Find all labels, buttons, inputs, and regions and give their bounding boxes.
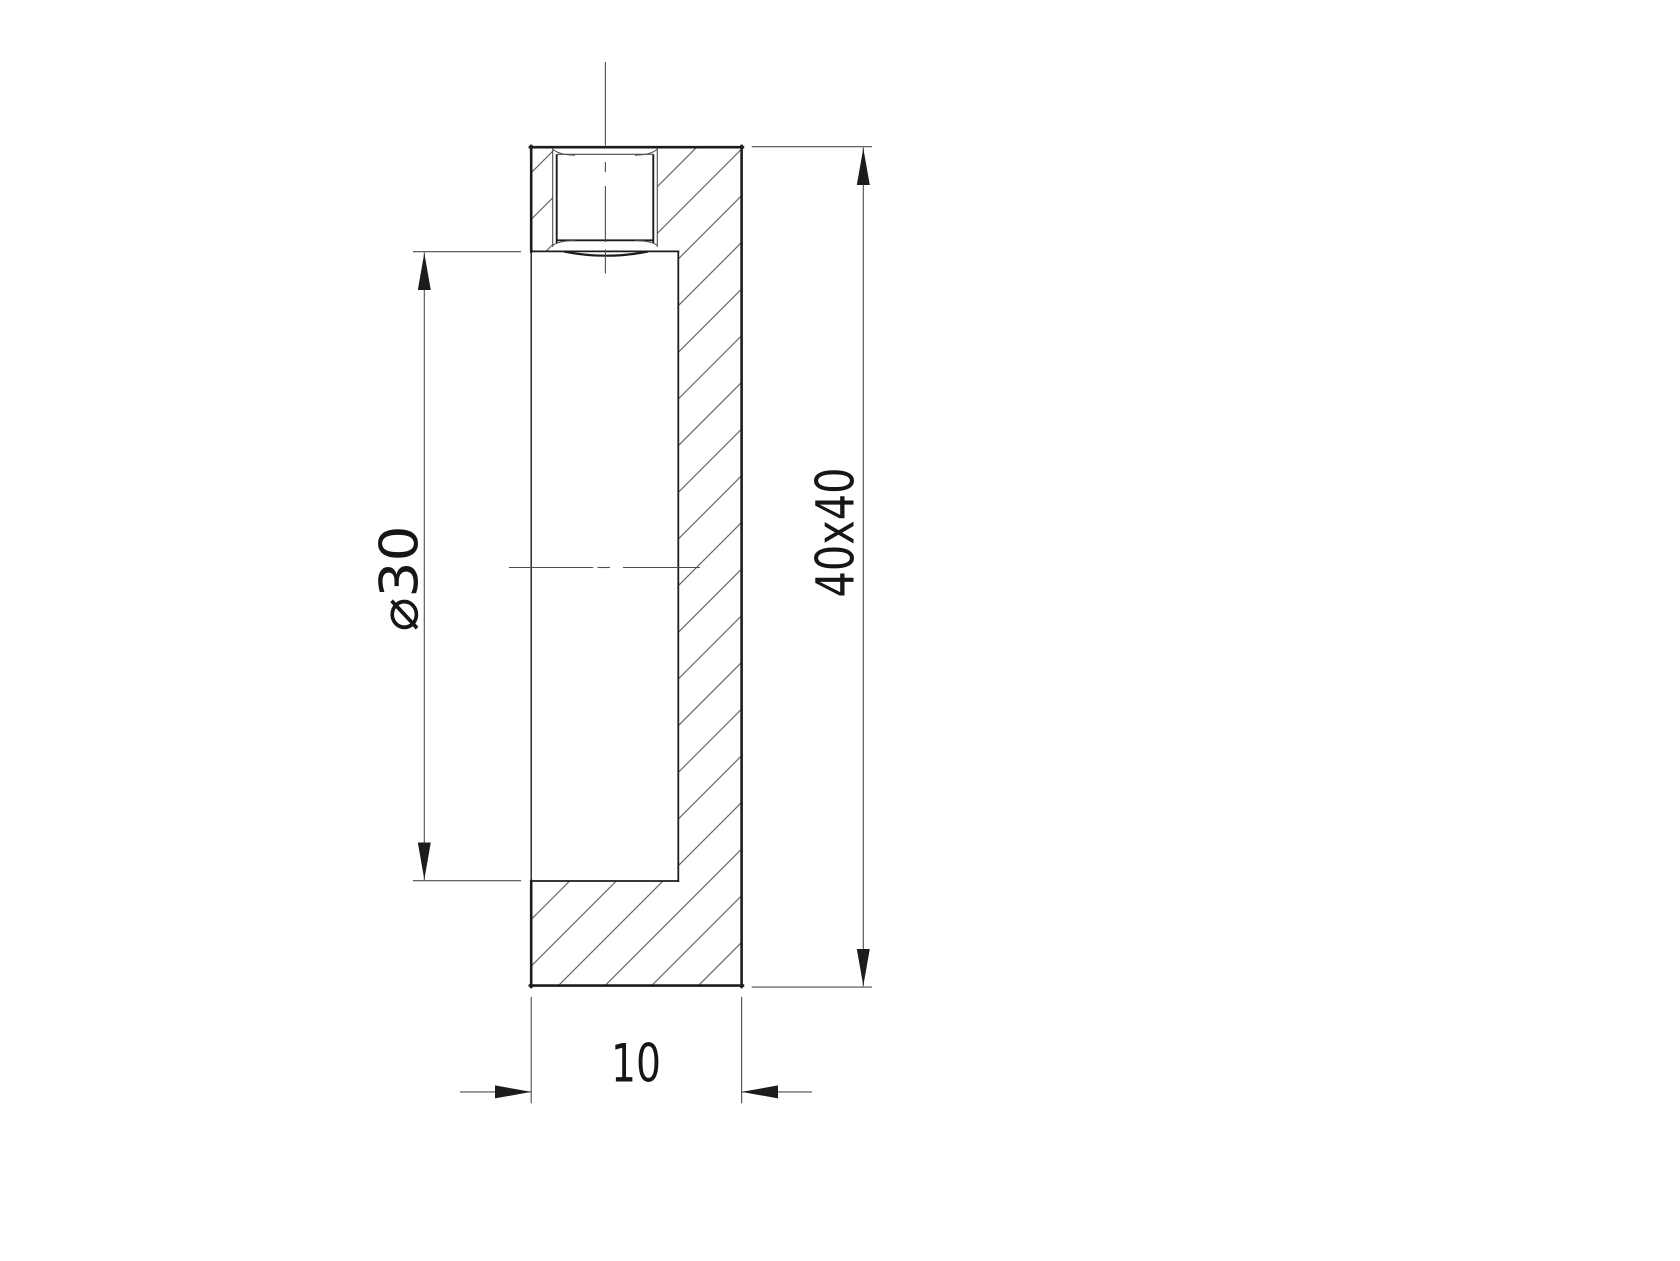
dimension-label-bore-diameter: ⌀30: [370, 526, 431, 632]
dim-overall-size: 40x40: [752, 147, 872, 987]
dim-thickness: 10: [460, 997, 812, 1103]
arrow-up: [857, 148, 870, 185]
counterbore: [531, 251, 678, 881]
dimension-label-overall-size: 40x40: [806, 468, 867, 598]
arrow-down: [418, 843, 431, 880]
dim-bore-diameter: ⌀30: [370, 252, 522, 881]
arrow-down: [857, 949, 870, 986]
drawing-sheet: ⌀30 40x40 10: [0, 0, 1680, 1261]
arrow-up: [418, 253, 431, 290]
arrow-left: [742, 1085, 778, 1098]
dimension-label-thickness: 10: [611, 1034, 661, 1095]
arrow-right: [495, 1085, 531, 1098]
technical-drawing-canvas: ⌀30 40x40 10: [0, 0, 1680, 1261]
section-hatching: [531, 147, 741, 985]
